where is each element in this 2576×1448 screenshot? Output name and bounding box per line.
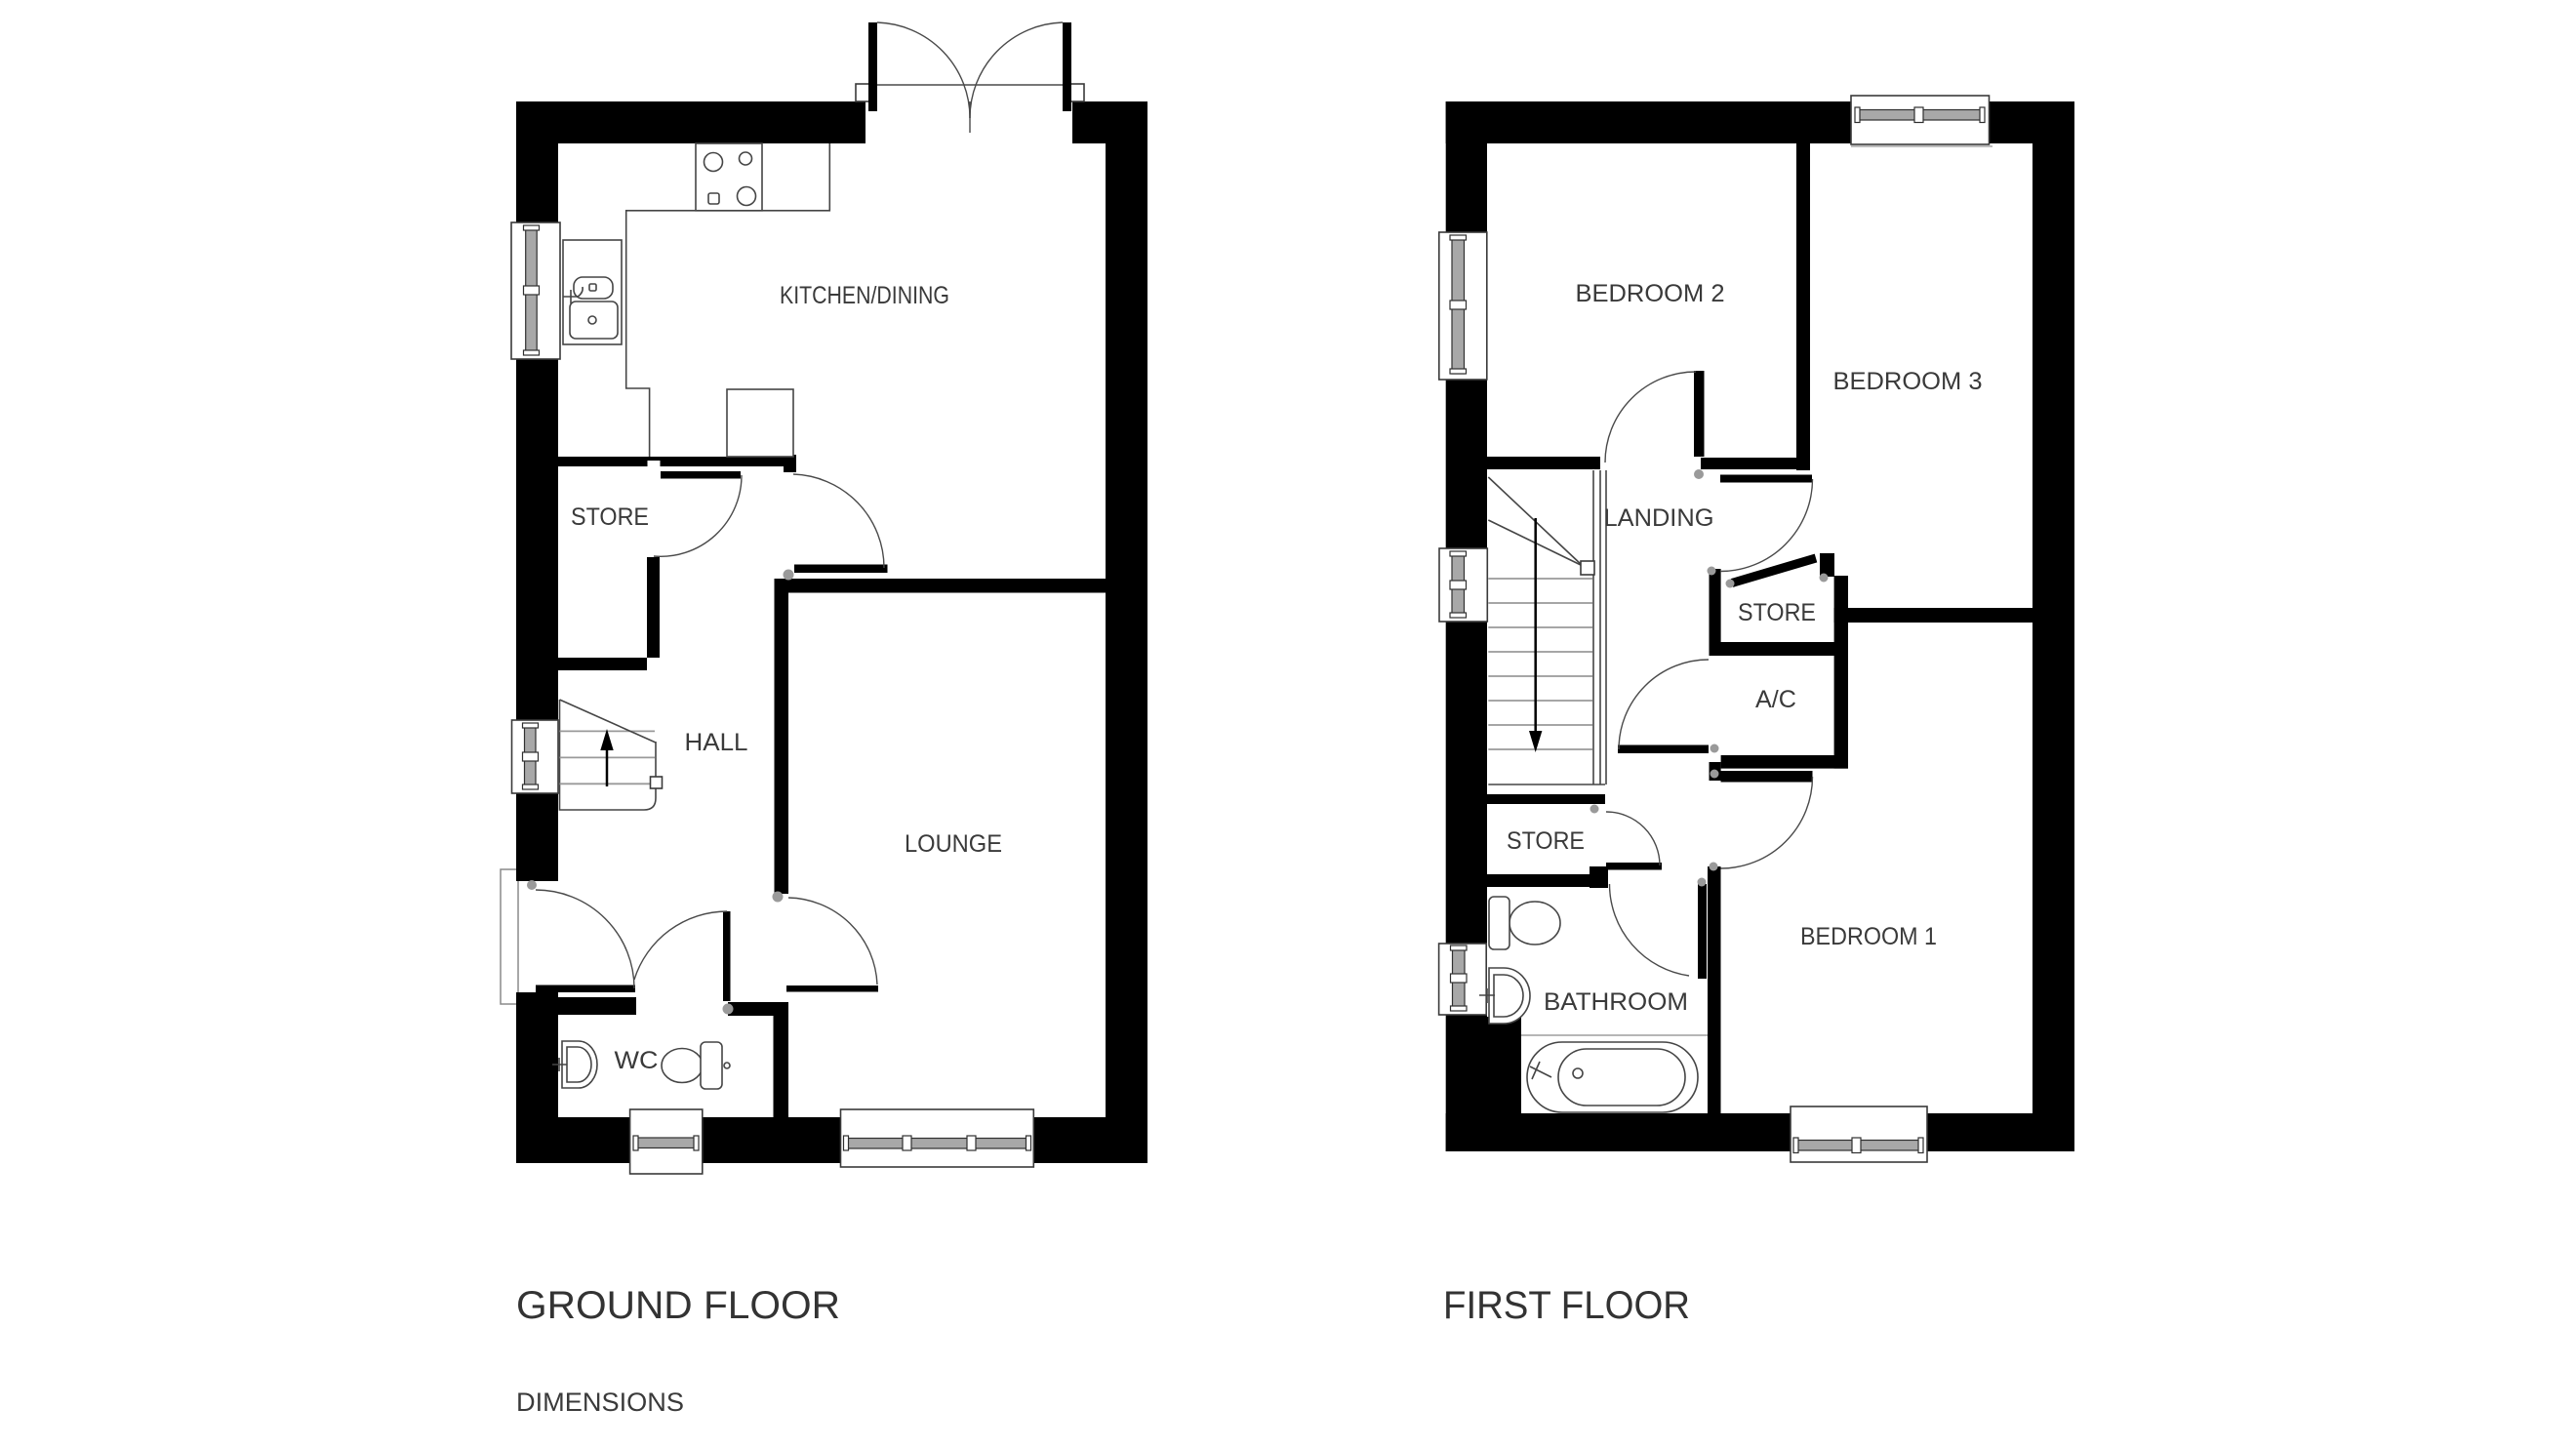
svg-text:FIRST FLOOR: FIRST FLOOR bbox=[1443, 1284, 1690, 1327]
svg-text:LANDING: LANDING bbox=[1604, 504, 1714, 532]
svg-text:STORE: STORE bbox=[571, 503, 649, 531]
svg-text:LOUNGE: LOUNGE bbox=[905, 830, 1002, 858]
svg-text:BEDROOM 2: BEDROOM 2 bbox=[1576, 280, 1725, 307]
svg-text:BATHROOM: BATHROOM bbox=[1544, 988, 1688, 1016]
svg-text:STORE: STORE bbox=[1738, 599, 1816, 626]
svg-text:Bedroom 1 3.81m x 2.99m: Bedroom 1 3.81m x 2.99m bbox=[1186, 1443, 1484, 1448]
svg-text:BEDROOM 3: BEDROOM 3 bbox=[1833, 368, 1983, 395]
svg-text:Kitchen/Dining 4.87m x 3.28m (: Kitchen/Dining 4.87m x 3.28m (16'0" x 10… bbox=[516, 1443, 1018, 1448]
svg-text:GROUND FLOOR: GROUND FLOOR bbox=[516, 1284, 840, 1327]
svg-text:STORE: STORE bbox=[1507, 827, 1585, 855]
svg-text:BEDROOM 1: BEDROOM 1 bbox=[1800, 923, 1937, 950]
svg-text:DIMENSIONS: DIMENSIONS bbox=[516, 1388, 684, 1417]
svg-text:HALL: HALL bbox=[685, 729, 748, 756]
svg-text:KITCHEN/DINING: KITCHEN/DINING bbox=[780, 282, 949, 309]
svg-text:WC: WC bbox=[615, 1047, 659, 1074]
svg-text:A/C: A/C bbox=[1755, 686, 1796, 713]
